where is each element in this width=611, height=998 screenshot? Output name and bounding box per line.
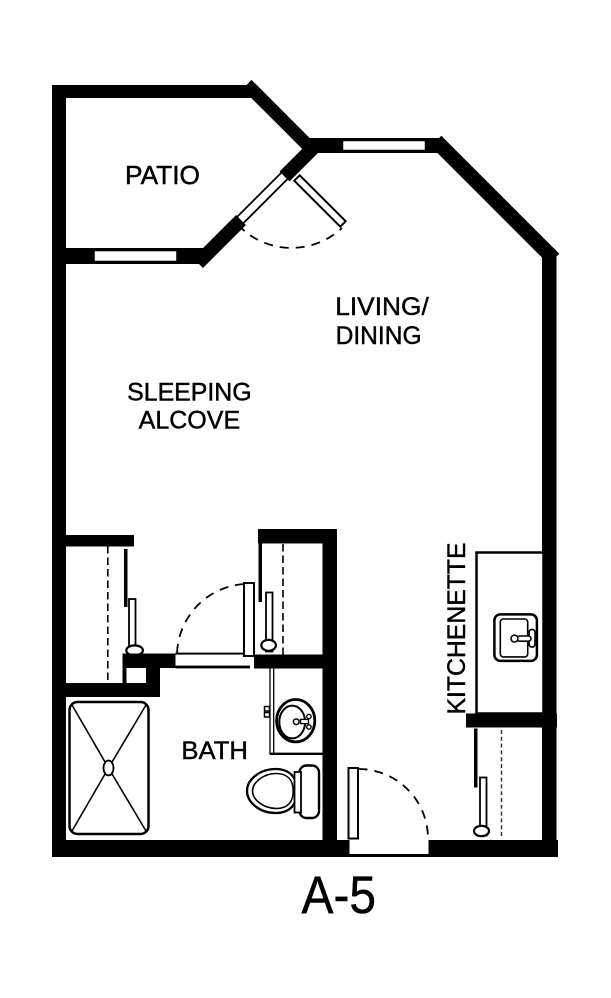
svg-text:DINING: DINING: [336, 322, 422, 350]
svg-text:BATH: BATH: [181, 737, 248, 765]
svg-text:LIVING/: LIVING/: [335, 293, 429, 321]
svg-text:SLEEPING: SLEEPING: [127, 379, 252, 407]
svg-text:ALCOVE: ALCOVE: [139, 407, 241, 435]
svg-text:A-5: A-5: [302, 866, 377, 925]
svg-text:PATIO: PATIO: [125, 160, 200, 190]
svg-text:KITCHENETTE: KITCHENETTE: [443, 543, 471, 715]
